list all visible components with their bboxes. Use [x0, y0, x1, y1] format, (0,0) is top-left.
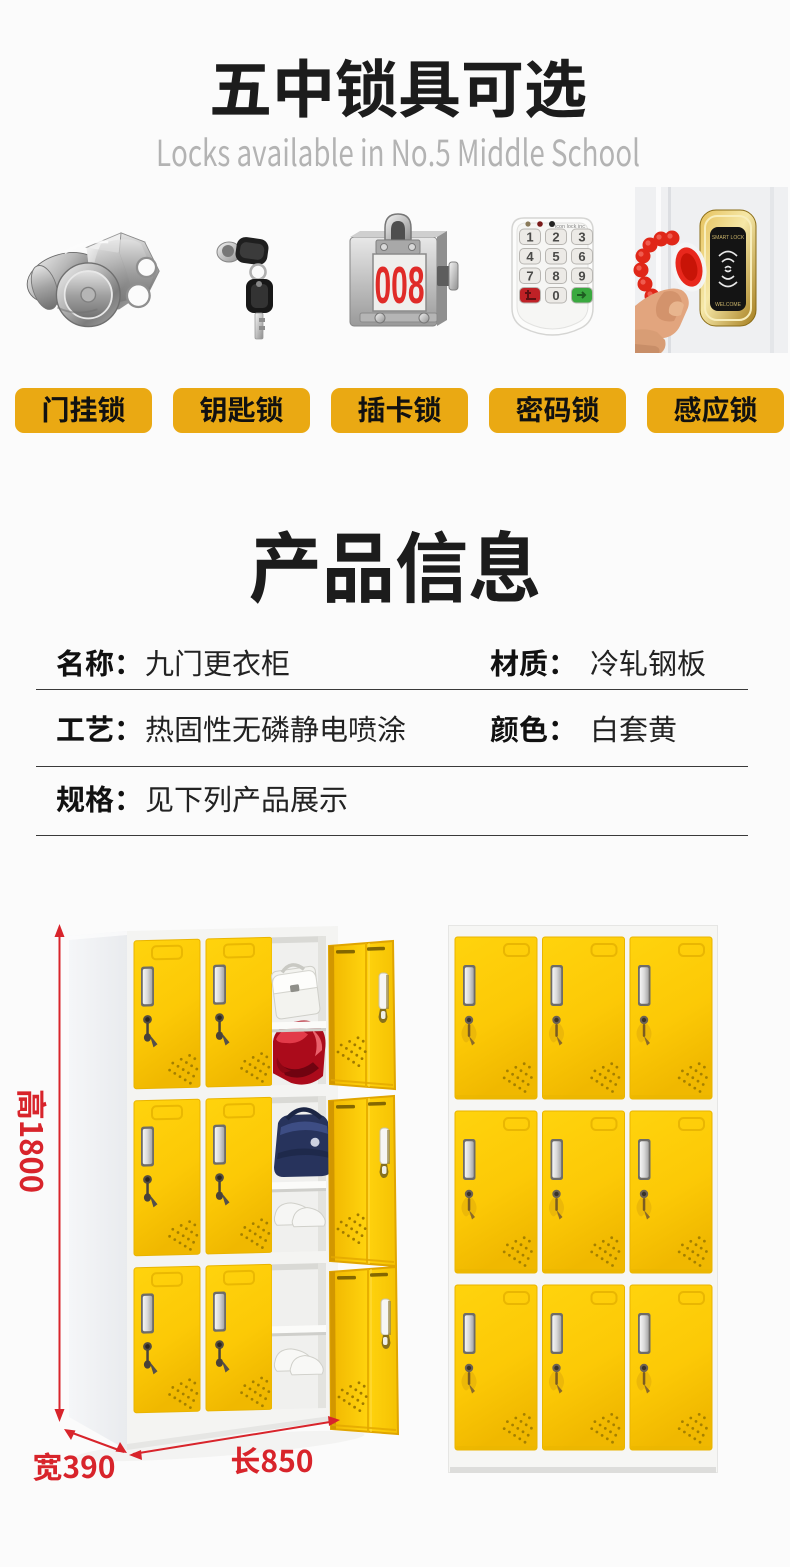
svg-text:2: 2 [552, 230, 559, 245]
svg-text:9: 9 [578, 269, 585, 284]
svg-text:5: 5 [552, 249, 559, 264]
svg-text:SMART LOCK: SMART LOCK [712, 235, 745, 241]
svg-text:008: 008 [375, 257, 425, 315]
svg-text:1: 1 [526, 230, 533, 245]
svg-text:4: 4 [526, 249, 534, 264]
svg-text:3: 3 [578, 230, 585, 245]
svg-text:WELCOME: WELCOME [715, 302, 742, 308]
svg-text:6: 6 [578, 249, 585, 264]
svg-text:0: 0 [552, 288, 559, 303]
svg-text:7: 7 [526, 269, 533, 284]
svg-text:8: 8 [552, 269, 559, 284]
